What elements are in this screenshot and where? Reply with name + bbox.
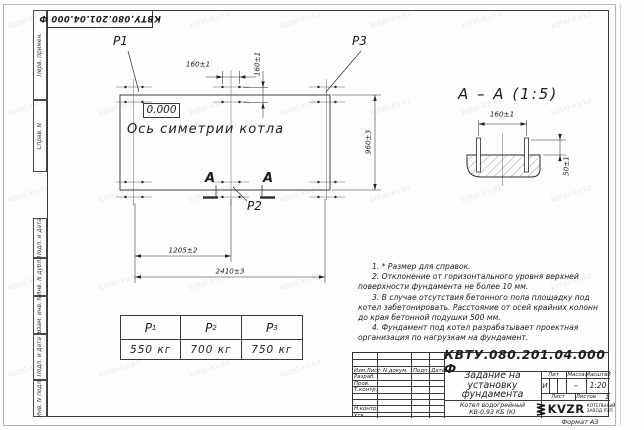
loads-table-header-p1: P1 <box>121 316 181 340</box>
tb-row-tkontr: Т.контр. <box>354 387 377 393</box>
load-symbol-sub: 2 <box>212 324 216 332</box>
dim-160-horizontal: 160±1 <box>186 60 210 69</box>
note-line: 3. В случае отсутствия бетонного пола пл… <box>358 293 608 324</box>
tb-product: Котел водогрейный КВ-0,93 КБ (К) <box>444 400 541 418</box>
kvzr-spring-icon <box>536 403 546 416</box>
tb-col-podp: Подп. <box>413 368 429 374</box>
tb-title-line: фундамента <box>462 390 524 400</box>
anchor-bolt-right <box>525 138 529 172</box>
dim-1205: 1205±2 <box>169 246 198 255</box>
tb-col-izm-list: Изм.Лист <box>354 368 380 374</box>
kvzr-caption-line: ЗАВОД РЭП <box>587 409 616 414</box>
plan-view <box>116 51 381 283</box>
section-dim-160: 160±1 <box>490 110 514 119</box>
section-letter-right: А <box>263 171 273 186</box>
load-point-label-p1: P1 <box>113 34 128 48</box>
tb-col-n-dokum: N докум. <box>383 368 408 374</box>
load-symbol: P <box>205 321 212 335</box>
tb-lit-value: И <box>541 378 549 393</box>
tb-col-data: Дата <box>431 368 445 374</box>
dim-2410: 2410±3 <box>216 267 245 276</box>
tb-product-line: Котел водогрейный <box>460 402 525 409</box>
section-view <box>467 120 566 186</box>
load-point-label-p2: P2 <box>247 199 262 213</box>
level-mark: 0.000 <box>143 103 180 118</box>
tb-sheets-cell: Листов 1 <box>575 393 610 400</box>
notes-block: 1. * Размер для справок. 2. Отклонение о… <box>358 262 608 343</box>
tb-mass-label: Масса <box>566 371 586 378</box>
load-symbol-sub: 1 <box>152 324 156 332</box>
tb-row-prov: Пров. <box>354 381 370 387</box>
dim-160-vertical: 160±1 <box>253 52 262 76</box>
note-line: 1. * Размер для справок. <box>358 262 608 272</box>
section-title: А – А (1:5) <box>458 85 558 103</box>
dim-960: 960±3 <box>364 130 373 154</box>
tb-sheets-label: Листов <box>576 394 596 400</box>
tb-scale-label: Масштаб <box>586 371 610 378</box>
load-symbol-sub: 3 <box>273 324 277 332</box>
tb-logo-cell: KVZR КОТЕЛЬНЫЙ ЗАВОД РЭП <box>541 400 610 418</box>
blueprint-sheet: { "watermark": { "text": "kotel-kv.kz" }… <box>0 0 644 430</box>
kvzr-logo-caption: КОТЕЛЬНЫЙ ЗАВОД РЭП <box>587 404 616 415</box>
tb-doc-number: КВТУ.080.201.04.000 Ф <box>444 353 610 371</box>
centerlines <box>116 70 345 206</box>
anchor-bolt-left <box>477 138 481 172</box>
load-point-label-p3: P3 <box>352 34 367 48</box>
tb-scale-value: 1:20 <box>586 378 610 393</box>
title-block: Изм.Лист N докум. Подп. Дата Разраб. Про… <box>352 352 609 417</box>
tb-doc-title: Задание на установку фундамента <box>444 371 541 400</box>
tb-mass-value: – <box>566 378 586 393</box>
tb-product-line: КВ-0,93 КБ (К) <box>469 409 515 416</box>
note-line: 4. Фундамент под котел разрабатывает про… <box>358 323 608 343</box>
tb-row-razrab: Разраб. <box>354 374 375 380</box>
loads-table-value-p2: 700 кг <box>181 340 241 359</box>
kvzr-logo: KVZR КОТЕЛЬНЫЙ ЗАВОД РЭП <box>536 402 616 416</box>
kvzr-logo-text: KVZR <box>548 402 585 416</box>
section-letter-left: А <box>205 171 215 186</box>
format-note: Формат А3 <box>520 418 640 426</box>
loads-table-value-p1: 550 кг <box>121 340 181 359</box>
loads-table-header-p2: P2 <box>181 316 241 340</box>
section-dim-50: 50±1 <box>562 156 571 176</box>
tb-row-utv: Утв. <box>354 413 365 419</box>
load-symbol: P <box>266 321 273 335</box>
tb-lit-label: Лит <box>541 371 566 378</box>
boiler-axis-label: Ось симетрии котла <box>127 122 284 137</box>
load-symbol: P <box>145 321 152 335</box>
loads-table-header-p3: P3 <box>242 316 302 340</box>
loads-table: P1 P2 P3 550 кг 700 кг 750 кг <box>120 315 303 360</box>
tb-row-nkontr: Н.контр. <box>354 406 378 412</box>
note-line: 2. Отклонение от горизонтального уровня … <box>358 272 608 292</box>
loads-table-value-p3: 750 кг <box>242 340 302 359</box>
tb-sheet-label: Лист <box>541 393 575 400</box>
